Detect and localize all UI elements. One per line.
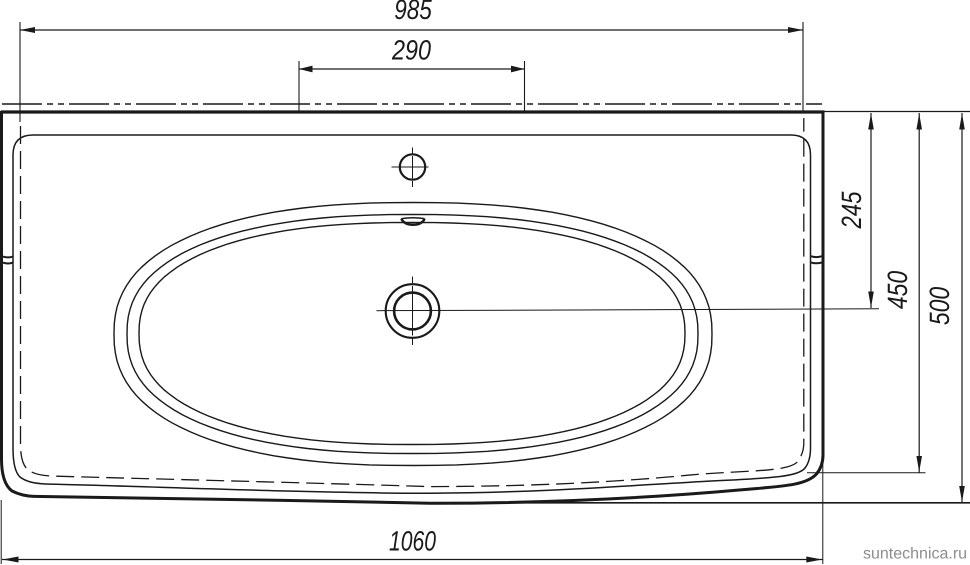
svg-text:985: 985 bbox=[394, 0, 432, 25]
svg-text:450: 450 bbox=[882, 270, 913, 309]
svg-text:500: 500 bbox=[924, 286, 955, 325]
svg-text:1060: 1060 bbox=[389, 526, 436, 557]
svg-text:290: 290 bbox=[391, 35, 431, 66]
svg-text:245: 245 bbox=[836, 191, 867, 229]
svg-text:suntechnica.ru: suntechnica.ru bbox=[863, 546, 967, 563]
